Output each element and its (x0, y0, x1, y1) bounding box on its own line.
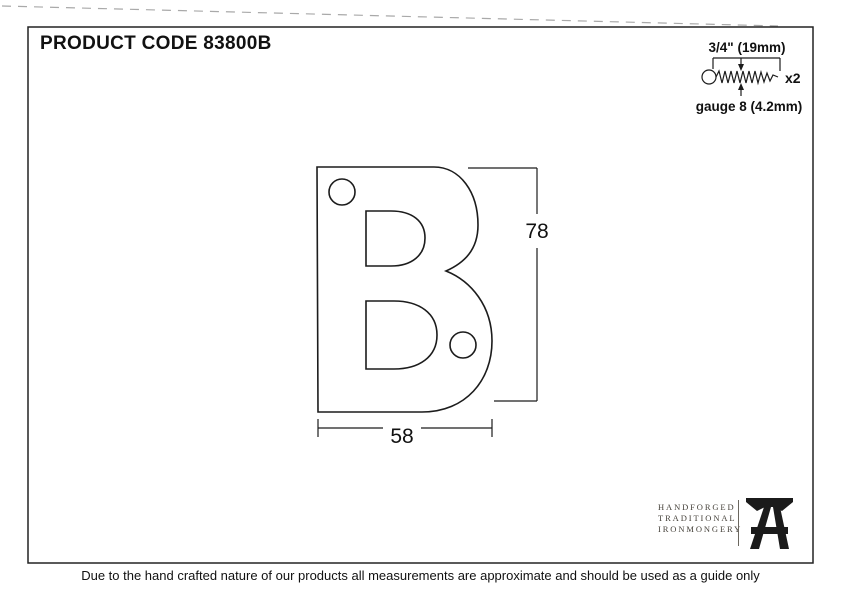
screw-quantity-label: x2 (785, 70, 801, 86)
height-dimension-label: 78 (525, 220, 548, 243)
letter-b-upper-counter (366, 211, 425, 266)
product-code-title: PRODUCT CODE 83800B (40, 33, 272, 55)
brand-line-traditional: TRADITIONAL (658, 513, 742, 524)
brand-divider (738, 500, 739, 546)
brand-line-handforged: HANDFORGED (658, 502, 742, 513)
height-dimension (468, 168, 537, 401)
letter-b-drawing (317, 167, 492, 412)
screw-head (702, 70, 716, 84)
brand-wordmark: HANDFORGED TRADITIONAL IRONMONGERY (658, 502, 742, 535)
letter-b-lower-counter (366, 301, 437, 369)
anvil-logo-icon (745, 497, 794, 549)
gauge-arrowhead-up (738, 83, 744, 90)
gauge-arrowhead-down (738, 64, 744, 71)
screw-thread (716, 71, 778, 83)
screw-length-label: 3/4" (19mm) (709, 40, 786, 55)
screw-diagram (702, 58, 780, 96)
letter-b-outline (317, 167, 492, 412)
screw-hole-top (329, 179, 355, 205)
screw-gauge-label: gauge 8 (4.2mm) (696, 99, 803, 114)
perforation-dashed-line (2, 6, 778, 26)
brand-line-ironmongery: IRONMONGERY (658, 524, 742, 535)
width-dimension-label: 58 (390, 425, 413, 448)
disclaimer-text: Due to the hand crafted nature of our pr… (28, 568, 813, 583)
screw-hole-bottom (450, 332, 476, 358)
